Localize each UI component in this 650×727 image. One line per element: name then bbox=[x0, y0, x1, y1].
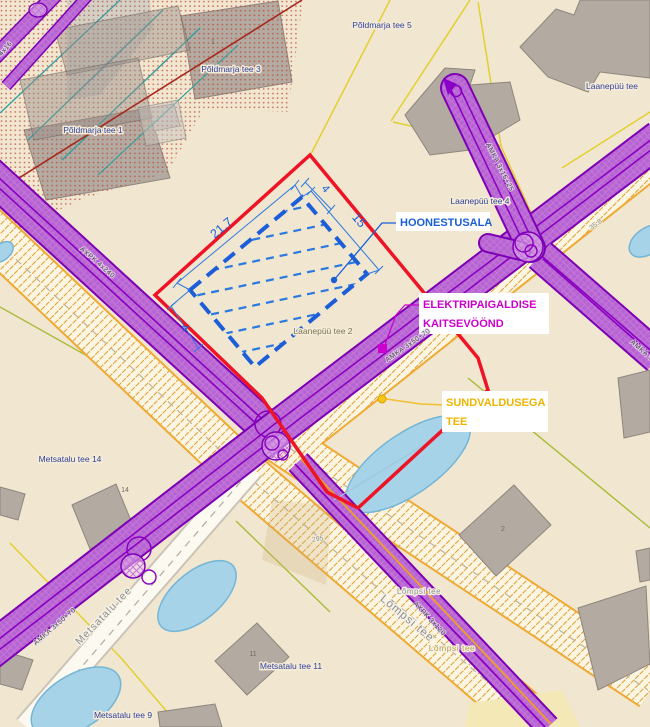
leader-dot bbox=[378, 395, 386, 403]
kaitsevoond-label-2: KAITSEVÖÖND bbox=[423, 317, 504, 330]
address-label: Metsatalu tee 14 bbox=[39, 454, 102, 464]
sundvaldus-label-2: TEE bbox=[446, 416, 467, 428]
building bbox=[618, 370, 650, 438]
sundvaldus-label-1: SUNDVALDUSEGA bbox=[446, 397, 545, 409]
address-label: Metsatalu tee 9 bbox=[94, 710, 152, 720]
hoonestusala-label: HOONESTUSALA bbox=[400, 217, 492, 229]
address-label: Põldmarja tee 5 bbox=[352, 20, 412, 30]
leader-marker bbox=[378, 344, 387, 353]
road-name: Lõmpsi tee bbox=[397, 587, 441, 596]
pole-symbol bbox=[121, 554, 145, 578]
address-label: Põldmarja tee 3 bbox=[201, 64, 261, 74]
house-number: 14 bbox=[121, 487, 129, 494]
address-label: Laanepüü tee 4 bbox=[450, 196, 509, 206]
house-number: 1 bbox=[211, 39, 215, 46]
road-name: Lõmpsi tee bbox=[429, 643, 476, 653]
map-canvas[interactable]: 21,7 15 4 4 HOONESTUSALA ELEKTRIPAIGALDI… bbox=[0, 0, 650, 727]
house-number: 2 bbox=[501, 526, 505, 533]
address-label: Laanepüü tee bbox=[586, 81, 638, 91]
building-ghost bbox=[138, 100, 186, 146]
planning-map: 21,7 15 4 4 HOONESTUSALA ELEKTRIPAIGALDI… bbox=[0, 0, 650, 727]
address-label: Metsatalu tee 11 bbox=[260, 661, 322, 671]
house-number: 11 bbox=[249, 651, 256, 658]
kaitsevoond-label-1: ELEKTRIPAIGALDISE bbox=[423, 299, 536, 311]
leader-dot bbox=[331, 277, 337, 283]
address-label: Põldmarja tee 1 bbox=[63, 125, 123, 135]
address-label: Laanepüü tee 2 bbox=[293, 326, 352, 336]
